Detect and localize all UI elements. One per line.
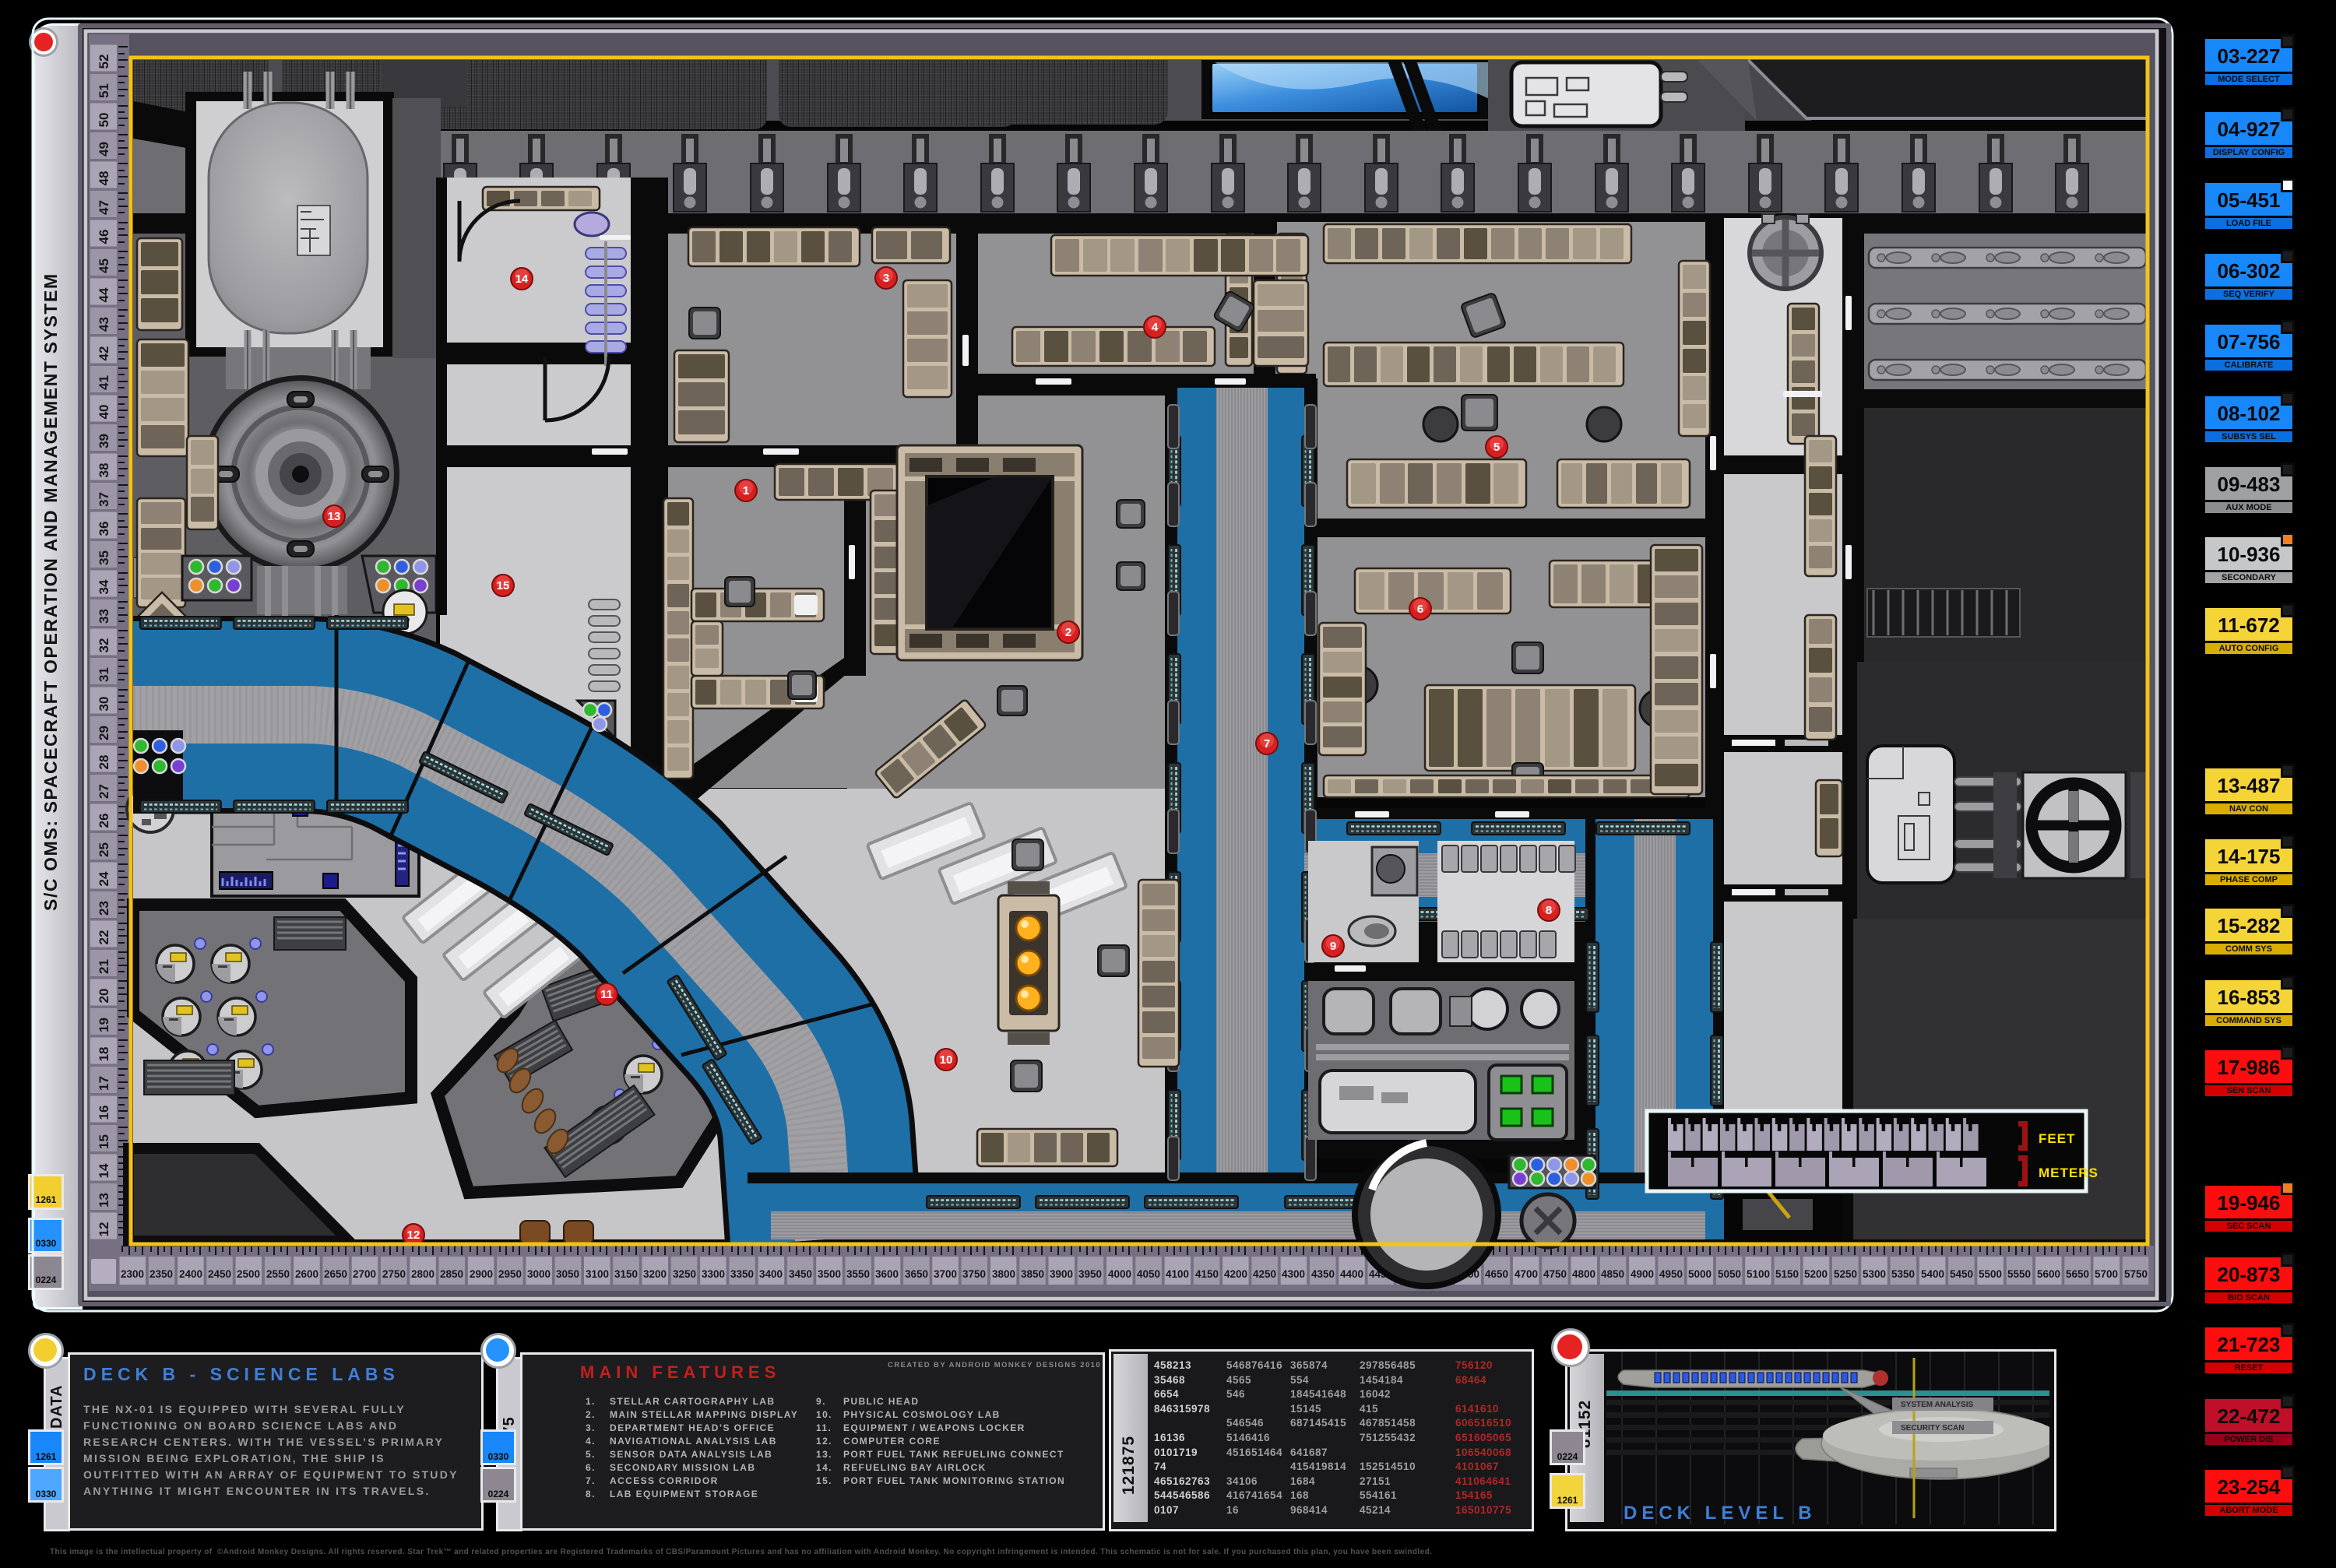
svg-text:4650: 4650 <box>1485 1268 1508 1280</box>
svg-text:27: 27 <box>97 784 111 799</box>
svg-text:34: 34 <box>97 579 111 594</box>
svg-text:5750: 5750 <box>2124 1268 2148 1280</box>
svg-text:48: 48 <box>97 171 111 186</box>
svg-text:44: 44 <box>97 287 111 302</box>
svg-text:4750: 4750 <box>1543 1268 1567 1280</box>
svg-text:5550: 5550 <box>2007 1268 2031 1280</box>
svg-text:3400: 3400 <box>759 1268 783 1280</box>
svg-text:2650: 2650 <box>324 1268 347 1280</box>
svg-text:5050: 5050 <box>1718 1268 1741 1280</box>
svg-text:3850: 3850 <box>1021 1268 1044 1280</box>
svg-text:25: 25 <box>97 842 111 857</box>
svg-text:3600: 3600 <box>875 1268 899 1280</box>
svg-text:3650: 3650 <box>905 1268 928 1280</box>
svg-text:3: 3 <box>883 272 889 285</box>
svg-text:12: 12 <box>97 1222 111 1237</box>
svg-text:2700: 2700 <box>353 1268 376 1280</box>
svg-text:14: 14 <box>515 272 529 286</box>
svg-text:2500: 2500 <box>237 1268 260 1280</box>
svg-text:12: 12 <box>407 1229 420 1242</box>
svg-text:2550: 2550 <box>266 1268 290 1280</box>
svg-text:7: 7 <box>1264 737 1270 751</box>
svg-text:28: 28 <box>97 755 111 770</box>
svg-text:3100: 3100 <box>586 1268 609 1280</box>
svg-text:4: 4 <box>1152 321 1159 334</box>
svg-text:4950: 4950 <box>1659 1268 1683 1280</box>
svg-text:5300: 5300 <box>1863 1268 1886 1280</box>
svg-text:3900: 3900 <box>1050 1268 1073 1280</box>
svg-text:3150: 3150 <box>614 1268 638 1280</box>
svg-text:47: 47 <box>97 200 111 215</box>
svg-text:2800: 2800 <box>411 1268 434 1280</box>
svg-text:3350: 3350 <box>730 1268 754 1280</box>
svg-text:45: 45 <box>97 258 111 273</box>
svg-text:10: 10 <box>940 1053 953 1067</box>
svg-text:36: 36 <box>97 522 111 536</box>
svg-text:6: 6 <box>1417 603 1423 616</box>
svg-text:13: 13 <box>328 510 341 523</box>
svg-text:2: 2 <box>1065 626 1071 639</box>
svg-text:4050: 4050 <box>1137 1268 1160 1280</box>
svg-text:9: 9 <box>1330 940 1336 953</box>
svg-text:SYSTEM ANALYSIS: SYSTEM ANALYSIS <box>1901 1401 1973 1409</box>
svg-text:30: 30 <box>97 697 111 712</box>
svg-text:5100: 5100 <box>1747 1268 1770 1280</box>
svg-text:3000: 3000 <box>527 1268 551 1280</box>
svg-text:2400: 2400 <box>179 1268 202 1280</box>
svg-text:16: 16 <box>97 1106 111 1120</box>
svg-text:4300: 4300 <box>1282 1268 1305 1280</box>
svg-text:3550: 3550 <box>846 1268 870 1280</box>
svg-text:5250: 5250 <box>1834 1268 1857 1280</box>
svg-text:FEET: FEET <box>2039 1131 2075 1146</box>
svg-text:40: 40 <box>97 405 111 420</box>
svg-text:4000: 4000 <box>1108 1268 1131 1280</box>
svg-text:8: 8 <box>1546 904 1552 917</box>
svg-text:3950: 3950 <box>1078 1268 1102 1280</box>
svg-text:4150: 4150 <box>1195 1268 1219 1280</box>
svg-text:5700: 5700 <box>2095 1268 2118 1280</box>
svg-text:42: 42 <box>97 346 111 361</box>
svg-text:3450: 3450 <box>789 1268 812 1280</box>
svg-text:3050: 3050 <box>556 1268 579 1280</box>
svg-text:43: 43 <box>97 317 111 332</box>
svg-text:50: 50 <box>97 113 111 128</box>
svg-text:21: 21 <box>97 959 111 974</box>
svg-text:20: 20 <box>97 989 111 1004</box>
svg-text:2450: 2450 <box>208 1268 231 1280</box>
svg-text:38: 38 <box>97 463 111 478</box>
svg-text:49: 49 <box>97 142 111 156</box>
svg-text:24: 24 <box>97 871 111 886</box>
svg-text:5200: 5200 <box>1804 1268 1828 1280</box>
svg-text:13: 13 <box>97 1193 111 1208</box>
svg-text:5000: 5000 <box>1688 1268 1712 1280</box>
svg-text:3300: 3300 <box>702 1268 725 1280</box>
svg-text:SECURITY SCAN: SECURITY SCAN <box>1901 1424 1965 1433</box>
svg-text:18: 18 <box>97 1047 111 1062</box>
svg-text:5350: 5350 <box>1891 1268 1915 1280</box>
svg-text:5400: 5400 <box>1921 1268 1944 1280</box>
svg-text:22: 22 <box>97 930 111 945</box>
svg-text:17: 17 <box>97 1076 111 1091</box>
svg-text:41: 41 <box>97 375 111 390</box>
svg-text:5450: 5450 <box>1950 1268 1973 1280</box>
svg-text:2900: 2900 <box>470 1268 493 1280</box>
svg-text:3800: 3800 <box>992 1268 1015 1280</box>
svg-text:5150: 5150 <box>1775 1268 1799 1280</box>
svg-text:4100: 4100 <box>1166 1268 1189 1280</box>
svg-text:4250: 4250 <box>1253 1268 1276 1280</box>
svg-text:METERS: METERS <box>2039 1165 2099 1180</box>
svg-text:26: 26 <box>97 814 111 828</box>
svg-text:5600: 5600 <box>2037 1268 2060 1280</box>
svg-text:51: 51 <box>97 83 111 98</box>
svg-text:3250: 3250 <box>673 1268 696 1280</box>
svg-text:46: 46 <box>97 230 111 244</box>
svg-text:5: 5 <box>1493 441 1500 454</box>
svg-text:15: 15 <box>97 1134 111 1149</box>
svg-text:5500: 5500 <box>1979 1268 2002 1280</box>
svg-text:35: 35 <box>97 550 111 565</box>
svg-text:19: 19 <box>97 1018 111 1032</box>
svg-text:1: 1 <box>743 484 749 497</box>
svg-text:32: 32 <box>97 638 111 653</box>
svg-text:4400: 4400 <box>1340 1268 1363 1280</box>
svg-text:11: 11 <box>600 988 613 1001</box>
svg-text:4800: 4800 <box>1572 1268 1595 1280</box>
svg-text:4900: 4900 <box>1631 1268 1654 1280</box>
svg-text:4200: 4200 <box>1224 1268 1247 1280</box>
svg-text:15: 15 <box>497 579 510 592</box>
svg-text:33: 33 <box>97 609 111 624</box>
svg-text:2600: 2600 <box>295 1268 318 1280</box>
svg-text:3500: 3500 <box>818 1268 841 1280</box>
svg-text:2750: 2750 <box>382 1268 406 1280</box>
svg-text:23: 23 <box>97 901 111 916</box>
svg-text:2350: 2350 <box>150 1268 173 1280</box>
svg-text:4850: 4850 <box>1601 1268 1624 1280</box>
svg-text:2850: 2850 <box>440 1268 463 1280</box>
svg-text:2950: 2950 <box>498 1268 522 1280</box>
svg-text:5650: 5650 <box>2066 1268 2089 1280</box>
svg-text:52: 52 <box>97 54 111 69</box>
svg-text:14: 14 <box>97 1163 111 1178</box>
svg-text:3750: 3750 <box>962 1268 986 1280</box>
svg-text:2300: 2300 <box>121 1268 144 1280</box>
svg-text:3200: 3200 <box>643 1268 667 1280</box>
svg-text:31: 31 <box>97 667 111 682</box>
svg-text:3700: 3700 <box>934 1268 957 1280</box>
svg-text:29: 29 <box>97 726 111 740</box>
svg-text:4700: 4700 <box>1515 1268 1538 1280</box>
svg-text:39: 39 <box>97 434 111 448</box>
svg-text:4350: 4350 <box>1311 1268 1335 1280</box>
svg-text:37: 37 <box>97 492 111 507</box>
